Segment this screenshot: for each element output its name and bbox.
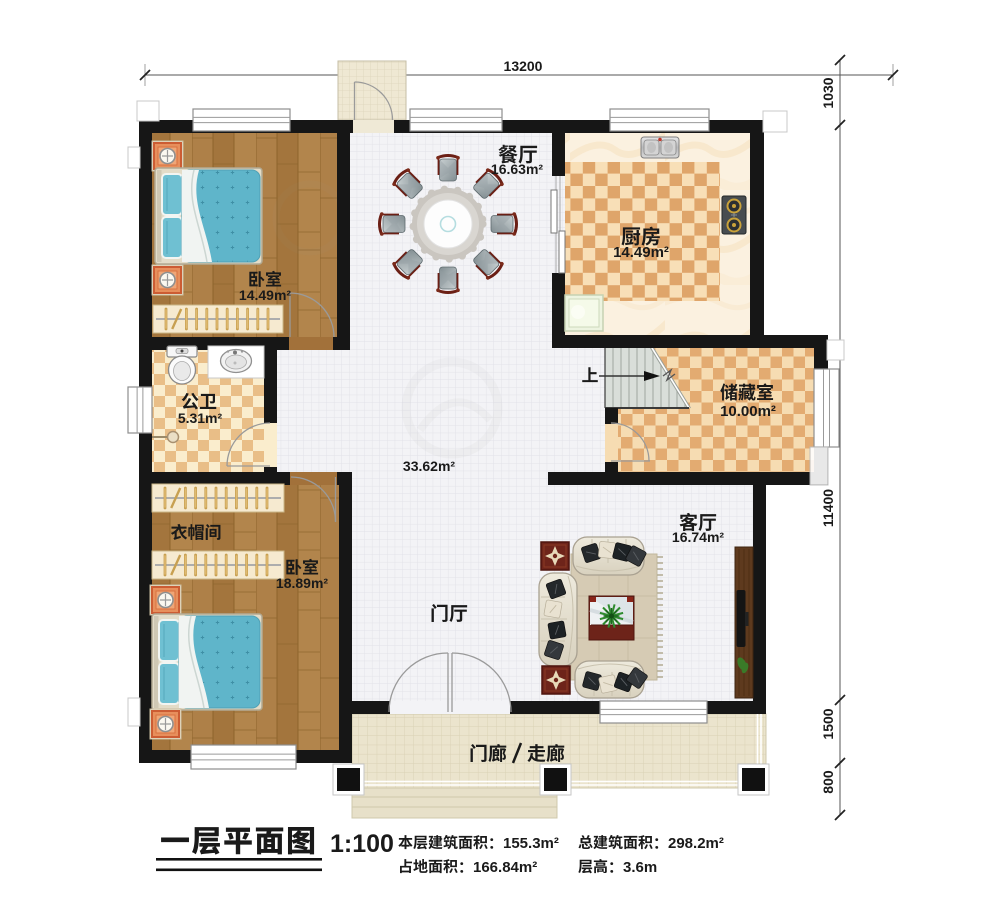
svg-text:33.62m²: 33.62m² <box>403 458 455 474</box>
svg-text:：3.6m: ：3.6m <box>608 859 657 876</box>
svg-text:16.63m²: 16.63m² <box>491 161 543 177</box>
svg-text:11400: 11400 <box>820 489 836 527</box>
svg-text:16.74m²: 16.74m² <box>672 529 724 545</box>
svg-text:10.00m²: 10.00m² <box>720 403 776 420</box>
svg-text:800: 800 <box>820 770 836 794</box>
svg-text:1030: 1030 <box>820 77 836 108</box>
svg-text:1:100: 1:100 <box>330 830 394 858</box>
svg-text:13200: 13200 <box>504 58 543 74</box>
svg-text:：166.84m²: ：166.84m² <box>458 859 537 876</box>
svg-text:5.31m²: 5.31m² <box>178 410 223 426</box>
svg-text:14.49m²: 14.49m² <box>239 287 291 303</box>
svg-text:1500: 1500 <box>820 708 836 739</box>
svg-text:18.89m²: 18.89m² <box>276 575 328 591</box>
svg-text:：298.2m²: ：298.2m² <box>653 835 724 852</box>
svg-text:：155.3m²: ：155.3m² <box>488 835 559 852</box>
svg-text:14.49m²: 14.49m² <box>613 244 669 261</box>
